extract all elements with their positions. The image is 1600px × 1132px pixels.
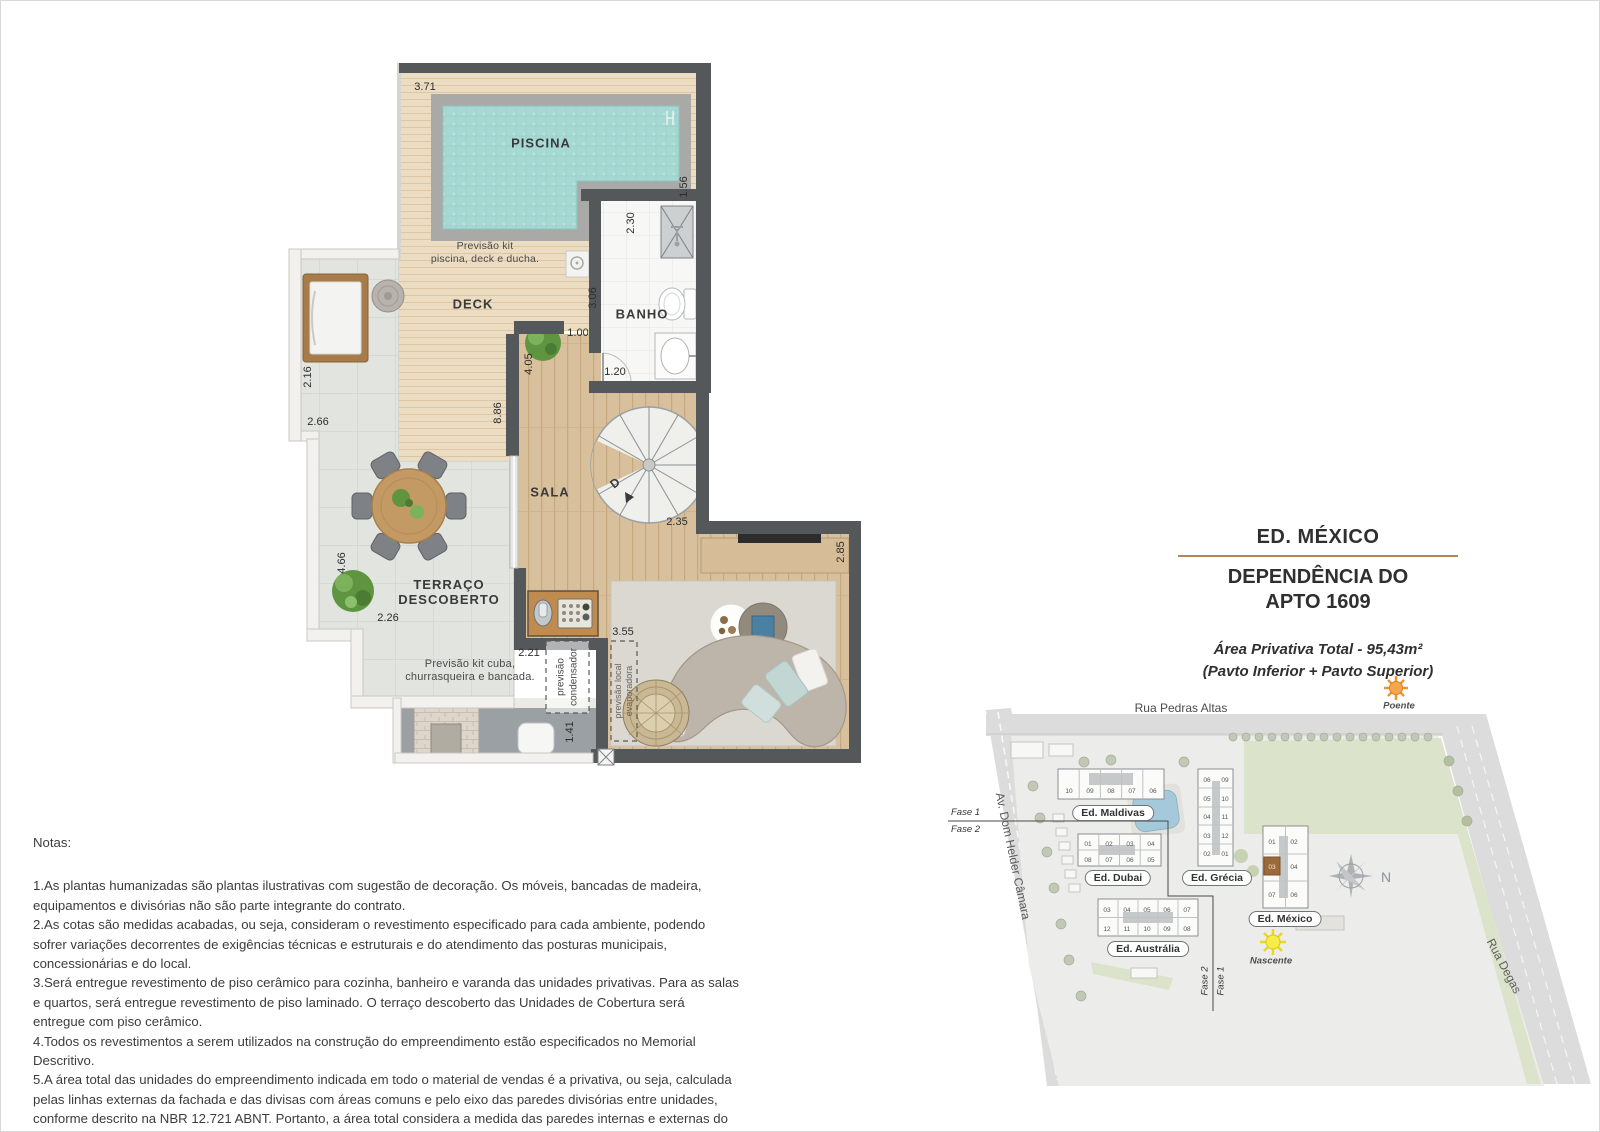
svg-text:03: 03 xyxy=(1203,833,1211,840)
dimension-label: 3.71 xyxy=(414,81,435,93)
dimension-label: 2.35 xyxy=(666,516,687,528)
room-label-deck: DECK xyxy=(453,297,494,312)
room-label-sala: SALA xyxy=(530,485,569,500)
building-title: ED. MÉXICO xyxy=(1178,526,1458,549)
svg-text:06: 06 xyxy=(1290,892,1298,899)
unit-title-line2: APTO 1609 xyxy=(1178,590,1458,615)
kit-cuba-line2: churrasqueira e bancada. xyxy=(405,671,535,683)
svg-text:08: 08 xyxy=(1107,788,1115,795)
street-label-rua-pedras-altas: Rua Pedras Altas xyxy=(1135,701,1228,715)
svg-text:02: 02 xyxy=(1203,851,1211,858)
building-mexico: 01 02 03 04 07 06 xyxy=(1263,826,1308,908)
dimension-label: 2.16 xyxy=(302,366,314,387)
fase2-vertical-label: Fase 2 xyxy=(1200,966,1211,995)
svg-text:05: 05 xyxy=(1203,796,1211,803)
dimension-label: 3.06 xyxy=(587,287,599,308)
fase1-vertical-label: Fase 1 xyxy=(1216,966,1227,995)
svg-text:04: 04 xyxy=(1290,864,1298,871)
svg-text:12: 12 xyxy=(1221,833,1229,840)
svg-text:07: 07 xyxy=(1268,892,1276,899)
grill-counter-icon xyxy=(528,591,598,636)
room-label-piscina: PISCINA xyxy=(511,136,571,151)
svg-text:09: 09 xyxy=(1163,926,1171,933)
svg-text:11: 11 xyxy=(1124,926,1131,933)
svg-text:03: 03 xyxy=(1103,907,1111,914)
dimension-label: 1.56 xyxy=(678,176,690,197)
note-item: 5.A área total das unidades do empreendi… xyxy=(33,1070,739,1132)
note-item: 3.Será entregue revestimento de piso cer… xyxy=(33,973,739,1031)
title-block: ED. MÉXICO DEPENDÊNCIA DO APTO 1609 Área… xyxy=(1178,526,1458,680)
svg-text:N: N xyxy=(1381,869,1391,885)
fase2-label: Fase 2 xyxy=(951,824,980,835)
kit-piscina-line1: Previsão kit xyxy=(457,240,514,252)
notes-title: Notas: xyxy=(33,833,739,852)
svg-text:07: 07 xyxy=(1105,857,1113,864)
svg-text:11: 11 xyxy=(1222,814,1229,821)
floor-plan: PISCINA DECK BANHO SALA TERRAÇO DESCOBER… xyxy=(281,51,881,781)
dimension-label: 2.30 xyxy=(625,212,637,233)
svg-text:09: 09 xyxy=(1221,777,1229,784)
svg-text:07: 07 xyxy=(1183,907,1191,914)
dimension-label: 4.05 xyxy=(523,353,535,374)
deck-shower xyxy=(566,251,589,277)
room-label-terraco: TERRAÇO DESCOBERTO xyxy=(398,577,500,607)
svg-text:04: 04 xyxy=(1147,841,1155,848)
svg-text:04: 04 xyxy=(1203,814,1211,821)
svg-text:08: 08 xyxy=(1084,857,1092,864)
svg-text:08: 08 xyxy=(1183,926,1191,933)
svg-text:12: 12 xyxy=(1103,926,1111,933)
note-item: 2.As cotas são medidas acabadas, ou seja… xyxy=(33,915,739,973)
svg-text:06: 06 xyxy=(1126,857,1134,864)
building-maldivas: 10 09 08 07 06 xyxy=(1058,769,1164,799)
dimension-label: 2.26 xyxy=(377,612,398,624)
annotation-evaporadora-line1: previsão local xyxy=(613,663,623,718)
dimension-label: 4.66 xyxy=(336,552,348,573)
dimension-label: 1.00 xyxy=(567,327,588,339)
private-area-label: Área Privativa Total - 95,43m² xyxy=(1178,641,1458,658)
spiral-stair-icon xyxy=(591,407,707,523)
building-label-grecia: Ed. Grécia xyxy=(1182,870,1252,886)
dimension-label: 2.66 xyxy=(307,416,328,428)
sun-west-label: Poente xyxy=(1383,701,1415,712)
fase1-label: Fase 1 xyxy=(951,807,980,818)
annotation-condensador-line2: condensador xyxy=(569,648,580,706)
dimension-label: 2.85 xyxy=(835,541,847,562)
svg-text:02: 02 xyxy=(1105,841,1113,848)
dimension-label: 1.41 xyxy=(564,721,576,742)
building-dubai: 01 02 03 04 08 07 06 05 xyxy=(1078,834,1161,866)
svg-text:04: 04 xyxy=(1123,907,1131,914)
building-label-australia: Ed. Austrália xyxy=(1107,941,1189,957)
building-label-mexico: Ed. México xyxy=(1249,911,1322,927)
dimension-label: 2.21 xyxy=(518,647,539,659)
site-map-drawing: 10 09 08 07 06 01 02 03 04 08 07 xyxy=(941,666,1600,1086)
sun-east-label: Nascente xyxy=(1250,956,1292,967)
page: PISCINA DECK BANHO SALA TERRAÇO DESCOBER… xyxy=(0,0,1600,1132)
annotation-kit-piscina: Previsão kit piscina, deck e ducha. xyxy=(431,240,539,266)
building-label-maldivas: Ed. Maldivas xyxy=(1072,805,1154,821)
annotation-kit-cuba: Previsão kit cuba, churrasqueira e banca… xyxy=(405,658,535,684)
sun-west-icon xyxy=(1384,676,1408,700)
annotation-condensador-line1: previsão xyxy=(556,658,567,696)
svg-text:10: 10 xyxy=(1065,788,1073,795)
svg-text:10: 10 xyxy=(1221,796,1229,803)
svg-text:02: 02 xyxy=(1290,839,1298,846)
room-label-banho: BANHO xyxy=(616,307,669,322)
svg-text:01: 01 xyxy=(1084,841,1092,848)
dimension-label: 3.55 xyxy=(612,626,633,638)
bathroom xyxy=(601,201,696,393)
site-map: 10 09 08 07 06 01 02 03 04 08 07 xyxy=(941,666,1600,1086)
sliding-door xyxy=(510,456,518,568)
kit-cuba-line1: Previsão kit cuba, xyxy=(425,658,515,670)
building-australia: 03 04 05 06 07 12 11 10 09 08 xyxy=(1098,899,1198,936)
terraco-line1: TERRAÇO xyxy=(413,577,484,592)
unit-title-line1: DEPENDÊNCIA DO xyxy=(1178,565,1458,590)
title-divider xyxy=(1178,555,1458,557)
shaft-icon xyxy=(598,749,614,765)
dimension-label: 1.20 xyxy=(604,366,625,378)
svg-text:09: 09 xyxy=(1086,788,1094,795)
terraco-line2: DESCOBERTO xyxy=(398,592,500,607)
building-label-dubai: Ed. Dubai xyxy=(1085,870,1151,886)
svg-text:01: 01 xyxy=(1221,851,1229,858)
svg-text:07: 07 xyxy=(1128,788,1136,795)
notes-section: Notas: 1.As plantas humanizadas são plan… xyxy=(33,833,739,1132)
svg-text:05: 05 xyxy=(1143,907,1151,914)
note-item: 4.Todos os revestimentos a serem utiliza… xyxy=(33,1032,739,1071)
building-grecia: 06 09 05 10 04 11 03 12 02 01 xyxy=(1198,769,1233,866)
floor-plan-drawing xyxy=(281,51,881,781)
note-item: 1.As plantas humanizadas são plantas ilu… xyxy=(33,876,739,915)
svg-text:06: 06 xyxy=(1163,907,1171,914)
svg-text:01: 01 xyxy=(1268,839,1276,846)
kit-piscina-line2: piscina, deck e ducha. xyxy=(431,253,539,265)
annotation-evaporadora-line2: evaporadora xyxy=(624,666,634,717)
svg-text:05: 05 xyxy=(1147,857,1155,864)
svg-text:06: 06 xyxy=(1203,777,1211,784)
svg-text:10: 10 xyxy=(1143,926,1151,933)
svg-text:03: 03 xyxy=(1126,841,1134,848)
svg-text:06: 06 xyxy=(1149,788,1157,795)
svg-text:03: 03 xyxy=(1268,864,1276,871)
dimension-label: 8.86 xyxy=(492,402,504,423)
